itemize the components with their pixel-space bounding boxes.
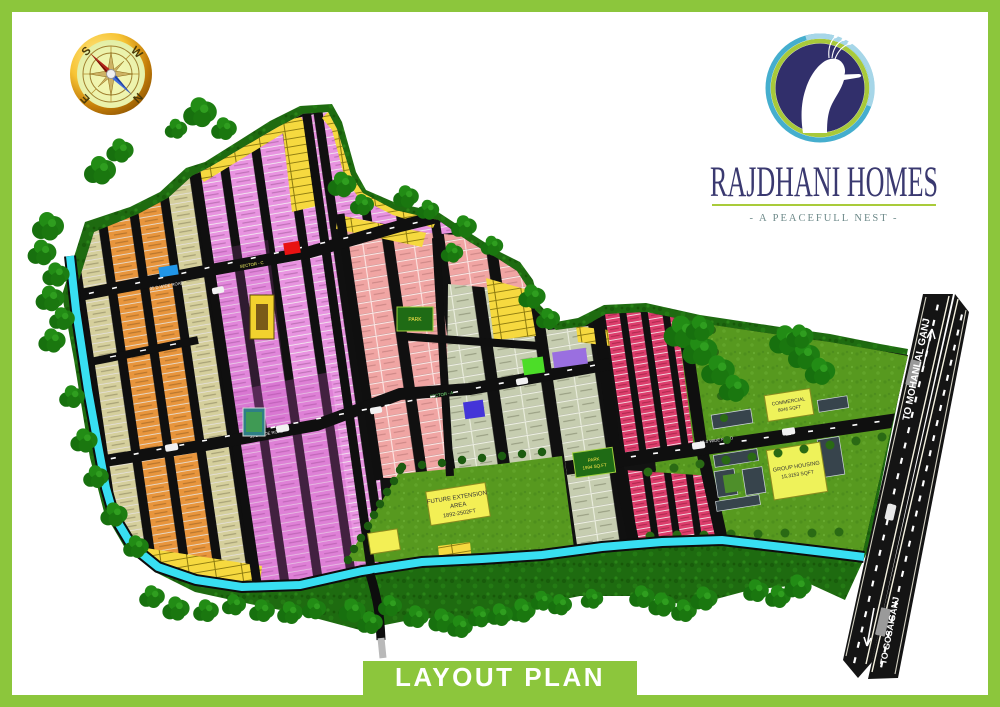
svg-text:RAJDHANI HOMES: RAJDHANI HOMES: [710, 159, 938, 206]
svg-text:LAYOUT PLAN: LAYOUT PLAN: [395, 662, 605, 692]
svg-text:- A PEACEFULL NEST -: - A PEACEFULL NEST -: [749, 213, 898, 224]
svg-text:PARK: PARK: [408, 317, 422, 323]
